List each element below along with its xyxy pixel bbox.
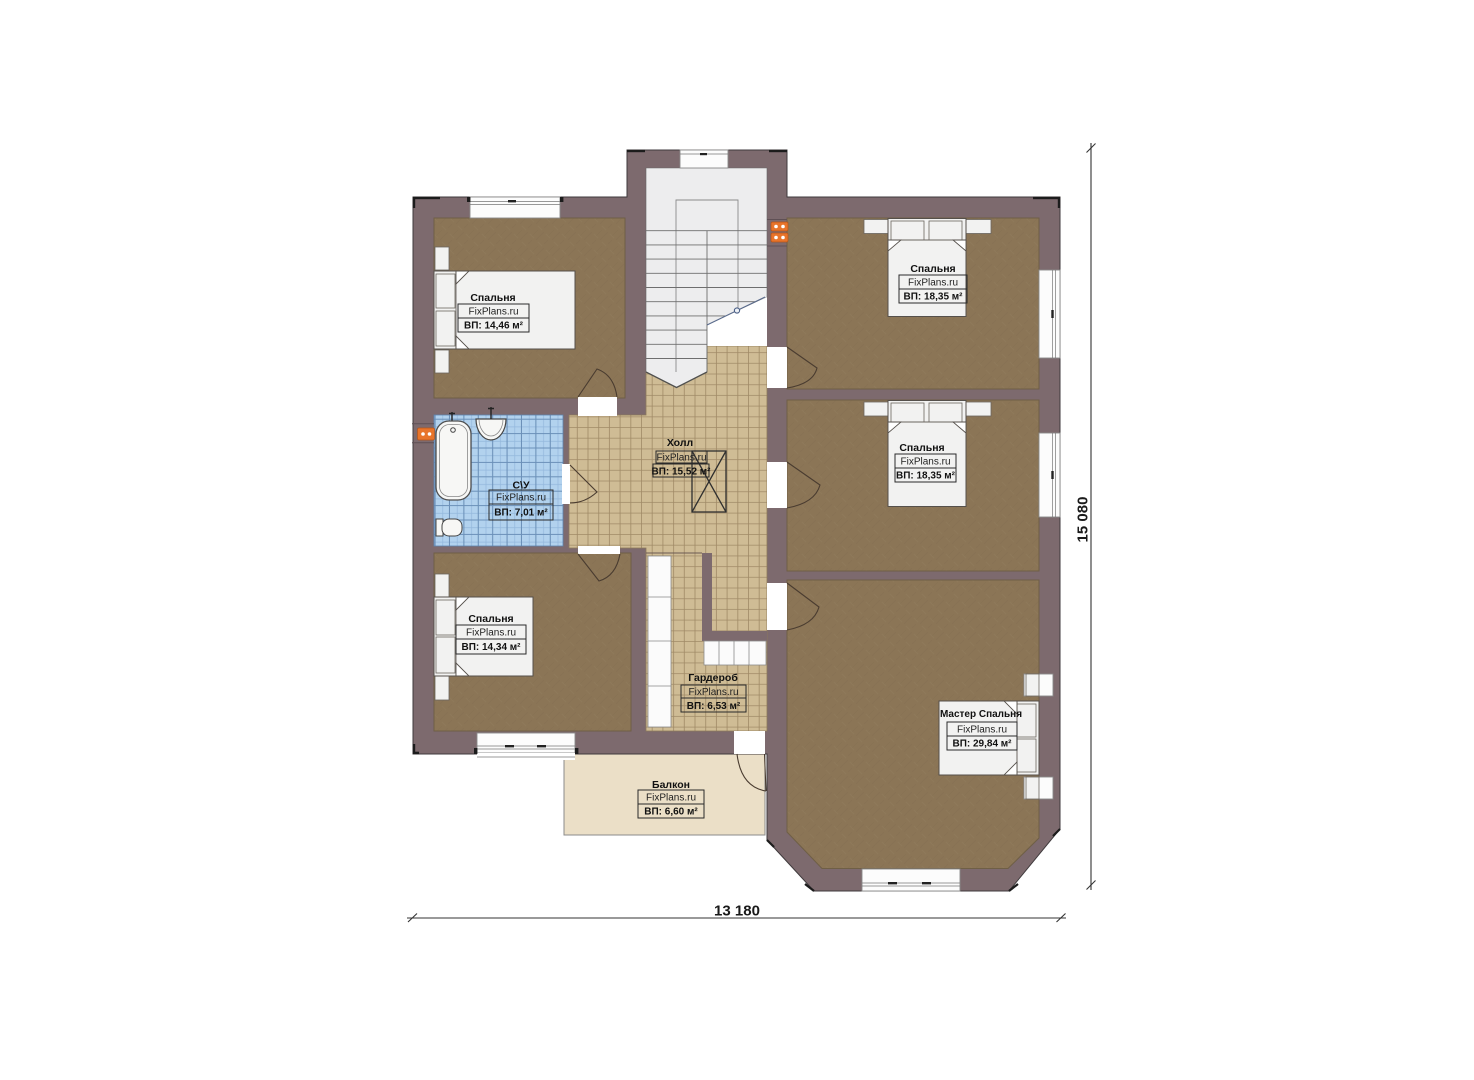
svg-text:FixPlans.ru: FixPlans.ru xyxy=(900,457,950,468)
svg-text:ВП: 14,34 м²: ВП: 14,34 м² xyxy=(461,642,521,653)
svg-text:Балкон: Балкон xyxy=(652,779,690,791)
svg-text:FixPlans.ru: FixPlans.ru xyxy=(957,725,1007,736)
svg-text:Спальня: Спальня xyxy=(899,442,944,454)
svg-text:Спальня: Спальня xyxy=(470,292,515,304)
svg-text:Спальня: Спальня xyxy=(910,263,955,275)
svg-text:ВП: 14,46 м²: ВП: 14,46 м² xyxy=(464,321,524,332)
svg-text:FixPlans.ru: FixPlans.ru xyxy=(496,493,546,504)
svg-text:Холл: Холл xyxy=(667,437,693,449)
svg-text:ВП: 29,84 м²: ВП: 29,84 м² xyxy=(952,739,1012,750)
svg-text:FixPlans.ru: FixPlans.ru xyxy=(908,278,958,289)
svg-text:FixPlans.ru: FixPlans.ru xyxy=(468,307,518,318)
svg-text:ВП: 18,35 м²: ВП: 18,35 м² xyxy=(896,471,956,482)
svg-text:Спальня: Спальня xyxy=(468,613,513,625)
svg-text:FixPlans.ru: FixPlans.ru xyxy=(466,628,516,639)
svg-text:FixPlans.ru: FixPlans.ru xyxy=(688,687,738,698)
svg-text:FixPlans.ru: FixPlans.ru xyxy=(656,453,706,464)
svg-text:Гардероб: Гардероб xyxy=(688,672,738,684)
svg-text:ВП: 15,52 м²: ВП: 15,52 м² xyxy=(651,467,711,478)
svg-text:13 180: 13 180 xyxy=(714,903,760,920)
svg-text:ВП: 7,01 м²: ВП: 7,01 м² xyxy=(494,508,548,519)
svg-text:ВП: 18,35 м²: ВП: 18,35 м² xyxy=(903,292,963,303)
svg-text:FixPlans.ru: FixPlans.ru xyxy=(646,793,696,804)
svg-text:ВП: 6,60 м²: ВП: 6,60 м² xyxy=(644,807,698,818)
svg-text:ВП: 6,53 м²: ВП: 6,53 м² xyxy=(687,701,741,712)
svg-text:15 080: 15 080 xyxy=(1075,497,1092,543)
svg-text:Мастер Спальня: Мастер Спальня xyxy=(940,709,1022,720)
